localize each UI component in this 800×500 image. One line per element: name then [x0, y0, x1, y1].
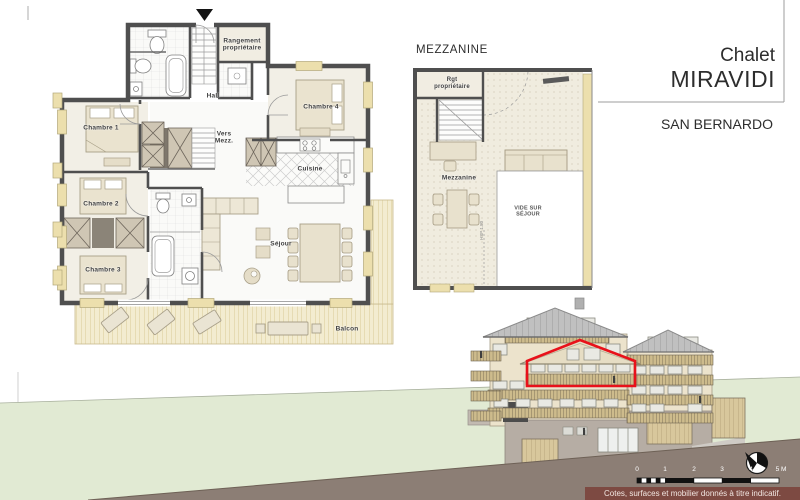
label-vide-sur-sejour: VIDE SUR SÉJOUR — [514, 206, 542, 219]
penthouse-balcony — [526, 374, 636, 385]
bedroom-2 — [80, 178, 126, 214]
wardrobes — [64, 218, 144, 248]
scale-label-2: 2 — [683, 466, 705, 473]
room-label-chambre3: Chambre 3 — [85, 266, 120, 273]
scale-label-4: 4 — [740, 466, 762, 473]
room-label-cuisine: Cuisine — [298, 165, 323, 172]
disclaimer-bar: Cotes, surfaces et mobilier donnés à tit… — [585, 487, 800, 500]
room-label-chambre2: Chambre 2 — [83, 200, 118, 207]
scale-bar — [637, 478, 779, 483]
room-label-balcon: Balcon — [336, 325, 359, 332]
dining-table — [300, 224, 340, 282]
scale-label-1: 1 — [654, 466, 676, 473]
building-elevation — [468, 298, 745, 466]
void-over-living — [497, 171, 583, 287]
right-roof — [623, 330, 714, 352]
entrance-arrow-icon — [196, 9, 213, 21]
scale-label-3: 3 — [711, 466, 733, 473]
tall-cupboards — [246, 138, 276, 166]
scale-label-0: 0 — [626, 466, 648, 473]
desk — [430, 142, 476, 160]
project-location: SAN BERNARDO — [661, 116, 773, 132]
mezzanine-plan — [413, 68, 592, 292]
mezzanine-title: MEZZANINE — [416, 44, 488, 56]
floorplan-sheet: Chambre 1 Chambre 2 Chambre 3 Chambre 4 … — [0, 0, 800, 500]
room-label-chambre4: Chambre 4 — [303, 103, 338, 110]
bedroom-3 — [80, 256, 126, 294]
room-label-vers-mezz: Vers Mezz. — [211, 131, 237, 146]
room-label-sejour: Séjour — [270, 240, 291, 247]
storage-wc — [228, 68, 246, 84]
main-floor-plan — [53, 9, 393, 344]
project-title: Chalet — [720, 45, 775, 67]
mezzanine-sofa — [505, 150, 567, 171]
scale-label-5: 5 M — [770, 466, 792, 473]
label-hsp: HSP 1.80 — [479, 221, 484, 240]
mezzanine-stairs — [439, 100, 483, 140]
label-mezzanine: Mezzanine — [442, 174, 476, 181]
project-name: MIRAVIDI — [670, 66, 775, 93]
room-label-rangement: Rangement propriétaire — [217, 38, 267, 53]
left-roof — [483, 298, 628, 337]
side-fence — [712, 398, 745, 438]
outdoor-sofa — [268, 322, 308, 335]
kitchen-island — [288, 186, 344, 203]
room-label-hall: Hall — [207, 92, 220, 99]
room-label-chambre1: Chambre 1 — [83, 124, 118, 131]
chimney — [575, 298, 584, 309]
side-table — [256, 228, 270, 240]
label-rgt-proprietaire: Rgt propriétaire — [431, 77, 473, 91]
